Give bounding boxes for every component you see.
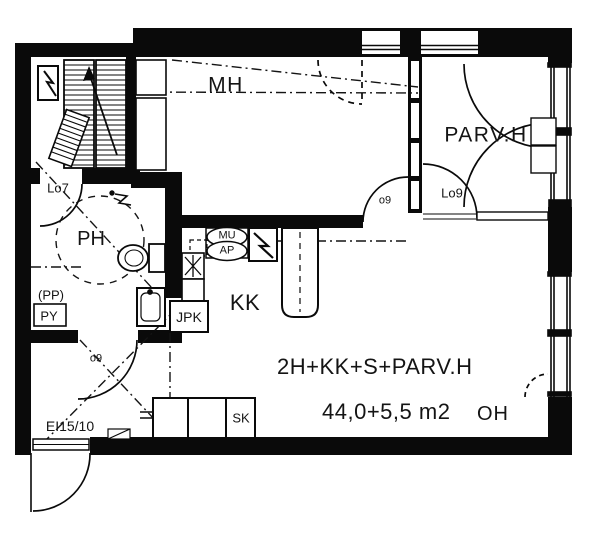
- washing-machine-label: PY: [40, 310, 57, 323]
- bathroom-fixtures: [34, 191, 165, 326]
- washer-reservation-label: (PP): [38, 289, 64, 302]
- room-label-bathroom: PH: [77, 229, 105, 249]
- wall-right-mid: [548, 207, 572, 272]
- toilet-tank: [149, 244, 165, 272]
- balcony-low-glazing: [477, 212, 548, 220]
- bedroom-closets: [136, 60, 166, 170]
- door-label-lo7: Lo7: [47, 182, 69, 195]
- living-room-window: [548, 272, 571, 397]
- living-room-dashed-arc: [525, 374, 548, 397]
- ceiling-slope-line-2: [136, 92, 418, 93]
- room-label-kitchenette: KK: [230, 292, 260, 314]
- wall-corner-topright: [548, 28, 572, 63]
- bedroom-bottom-wall: [165, 215, 363, 228]
- apartment-area-label: 44,0+5,5 m2: [322, 401, 450, 423]
- microwave-label: MU: [218, 231, 235, 242]
- room-label-living-room: OH: [477, 404, 509, 424]
- dishwasher-label: AP: [220, 246, 235, 257]
- room-label-balcony: PARV.H: [444, 125, 527, 146]
- floor-plan: MH PARV.H PH KK OH Lo7 Lo9 o9 o9 EI15/10…: [0, 0, 600, 534]
- angled-stair-flight: [49, 109, 89, 166]
- counter-box: [182, 279, 204, 301]
- window-top-2: [421, 31, 478, 54]
- bath-kitchen-wall: [165, 184, 182, 298]
- stairwell-wall: [126, 57, 136, 184]
- fridge-box: [249, 228, 277, 261]
- fridge-freezer-label: JPK: [176, 310, 202, 324]
- cleaning-closet-label: SK: [232, 412, 249, 425]
- wall-left: [15, 43, 31, 455]
- apartment-type-label: 2H+KK+S+PARV.H: [277, 356, 473, 378]
- room-label-bedroom: MH: [208, 75, 244, 96]
- staircase: [49, 60, 126, 168]
- bedroom-dashed-arc: [318, 60, 362, 104]
- wall-top-left: [15, 43, 140, 57]
- entry-door-arc: [33, 453, 90, 511]
- entry-fire-rating-label: EI15/10: [46, 419, 94, 433]
- door-label-lo9: Lo9: [441, 187, 463, 200]
- window-top-1: [362, 31, 400, 54]
- floor-plan-linework: [0, 0, 600, 534]
- electrical-box: [38, 66, 58, 100]
- door-label-o9-bathroom: o9: [90, 354, 102, 365]
- wall-top-main: [133, 28, 572, 57]
- door-label-o9-bedroom: o9: [379, 196, 391, 207]
- wall-bottom: [90, 437, 572, 455]
